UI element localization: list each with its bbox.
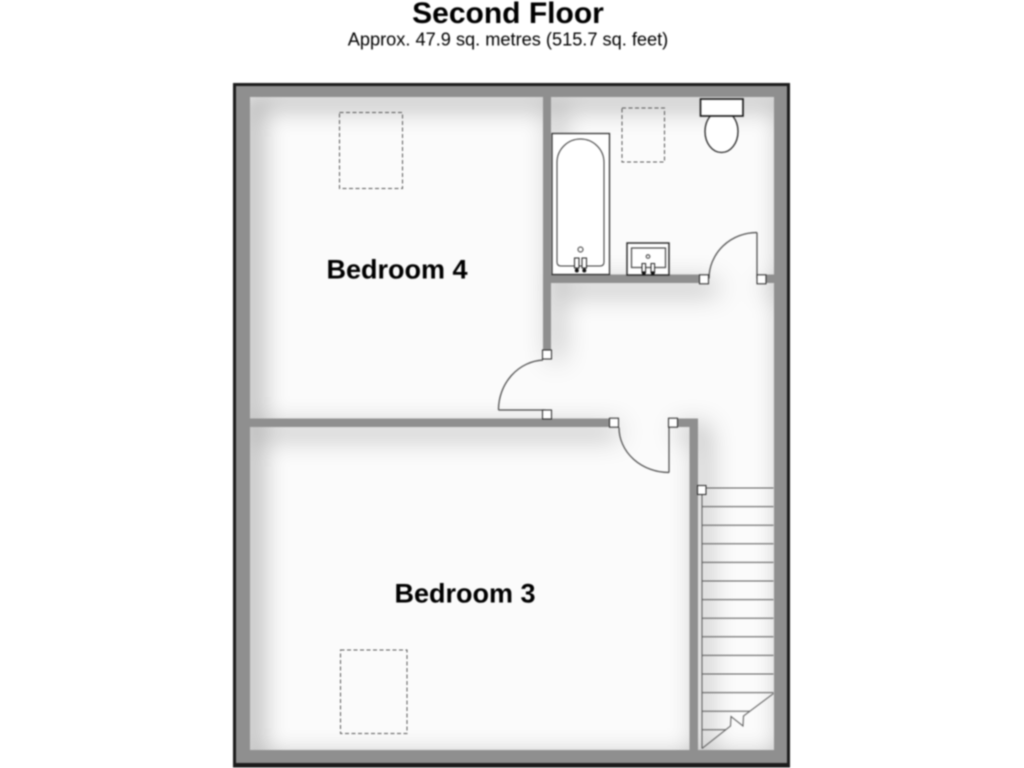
svg-text:Approx. 47.9 sq. metres (515.7: Approx. 47.9 sq. metres (515.7 sq. feet) (348, 29, 668, 49)
svg-text:Bedroom 4: Bedroom 4 (326, 255, 467, 285)
svg-text:Bedroom 3: Bedroom 3 (394, 579, 535, 609)
svg-text:Second Floor: Second Floor (412, 0, 604, 30)
